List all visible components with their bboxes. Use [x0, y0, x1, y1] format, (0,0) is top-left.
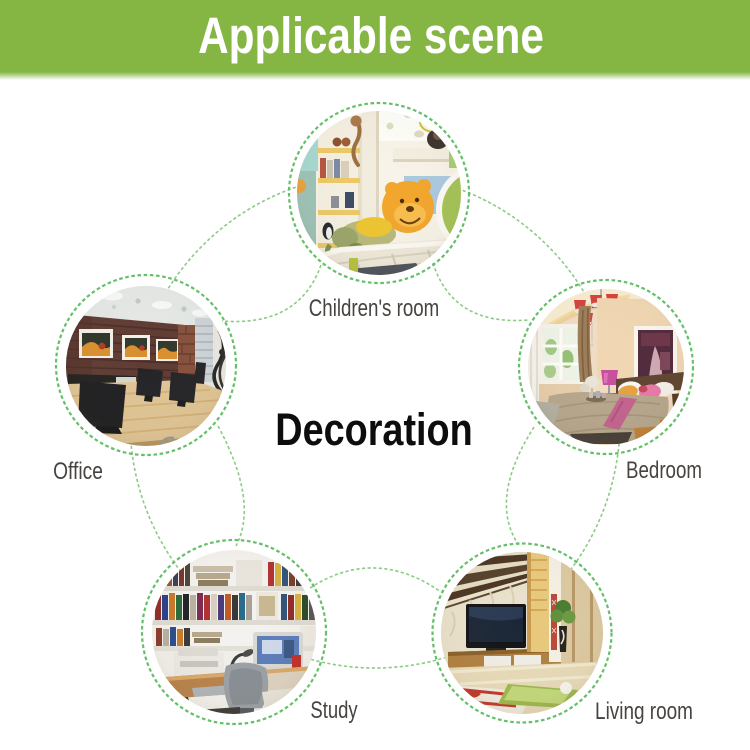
svg-text:Children's room: Children's room [309, 295, 439, 322]
svg-text:Applicable scene: Applicable scene [198, 7, 544, 64]
svg-text:Bedroom: Bedroom [626, 457, 702, 484]
svg-text:Decoration: Decoration [275, 404, 472, 455]
svg-text:Study: Study [310, 697, 357, 724]
svg-text:Office: Office [53, 457, 103, 485]
svg-text:Living room: Living room [595, 697, 693, 725]
